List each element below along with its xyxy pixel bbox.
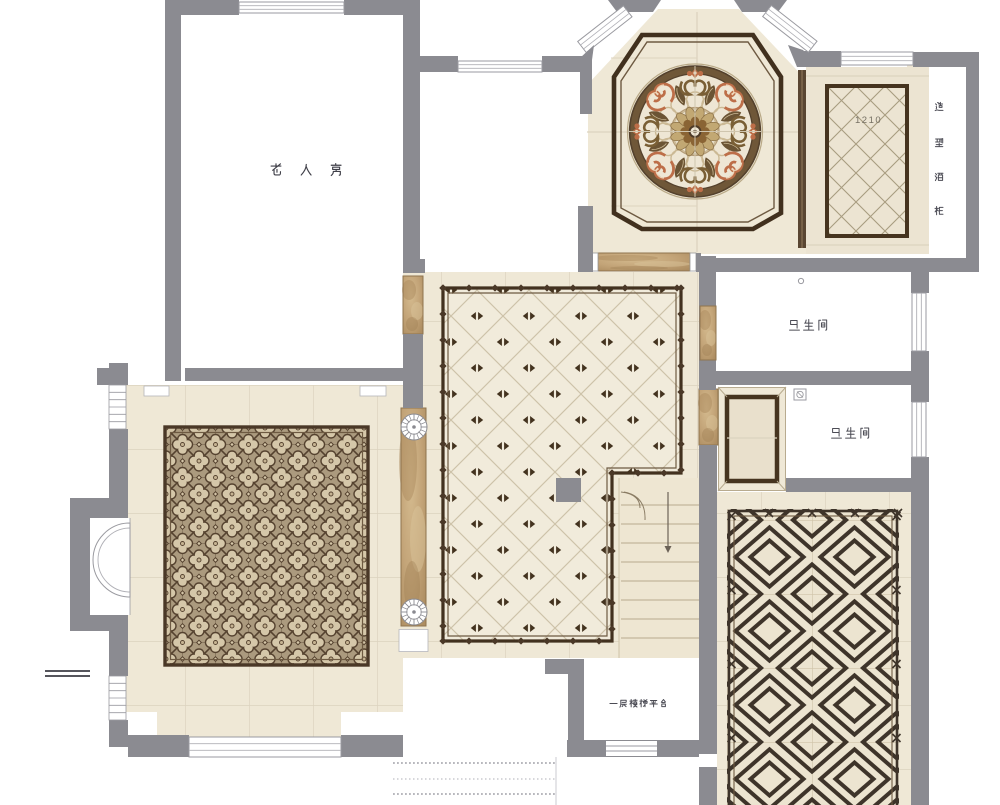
svg-text:1210: 1210 (855, 115, 882, 126)
